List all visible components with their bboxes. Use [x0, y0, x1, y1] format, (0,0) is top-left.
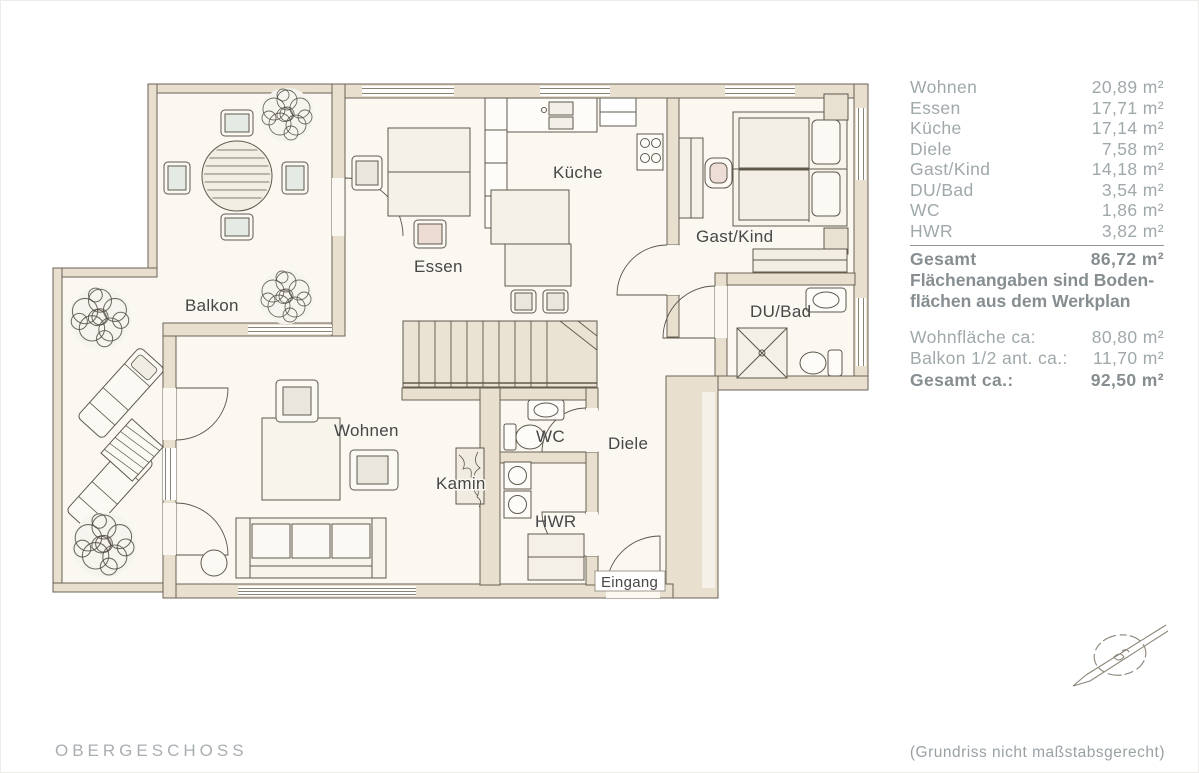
room-label-gast-kind: Gast/Kind — [696, 227, 773, 246]
room-label-hwr: HWR — [535, 512, 577, 531]
room-label-wohnen: Wohnen — [334, 421, 399, 440]
table-row: Wohnen20,89 m² — [910, 77, 1164, 98]
row-label: Küche — [910, 118, 962, 139]
summary-total-row: Gesamt ca.:92,50 m² — [910, 370, 1164, 392]
staircase — [403, 321, 597, 387]
summary-value: 11,70 m² — [1093, 348, 1164, 370]
table-row: Diele7,58 m² — [910, 139, 1164, 160]
scale-disclaimer: (Grundriss nicht maßstabsgerecht) — [910, 744, 1165, 762]
table-row: Essen17,71 m² — [910, 98, 1164, 119]
room-label-wc: WC — [536, 427, 565, 446]
table-row: HWR3,82 m² — [910, 221, 1164, 242]
area-table: Wohnen20,89 m² Essen17,71 m² Küche17,14 … — [910, 77, 1164, 391]
row-value: 7,58 m² — [1102, 139, 1164, 160]
row-label: Essen — [910, 98, 961, 119]
room-label-eingang: Eingang — [601, 574, 658, 591]
summary-label: Balkon 1/2 ant. ca.: — [910, 348, 1068, 370]
table-row: Küche17,14 m² — [910, 118, 1164, 139]
room-label-essen: Essen — [414, 257, 463, 276]
row-value: 17,14 m² — [1092, 118, 1164, 139]
row-value: 17,71 m² — [1092, 98, 1164, 119]
summary-label: Gesamt ca.: — [910, 370, 1014, 392]
summary-label: Wohnfläche ca: — [910, 327, 1036, 349]
total-label: Gesamt — [910, 249, 977, 270]
total-row: Gesamt86,72 m² — [910, 249, 1164, 270]
room-label-balkon: Balkon — [185, 296, 239, 315]
floor-title: OBERGESCHOSS — [55, 741, 248, 761]
summary-row: Wohnfläche ca:80,80 m² — [910, 327, 1164, 349]
room-label-kueche: Küche — [553, 163, 603, 182]
row-label: Diele — [910, 139, 952, 160]
summary-block: Wohnfläche ca:80,80 m² Balkon 1/2 ant. c… — [910, 327, 1164, 392]
area-note-line1: Flächenangaben sind Boden- — [910, 270, 1164, 291]
row-value: 3,82 m² — [1102, 221, 1164, 242]
architect-logo-icon — [1073, 625, 1168, 686]
row-label: Gast/Kind — [910, 159, 990, 180]
total-value: 86,72 m² — [1091, 249, 1164, 270]
room-label-diele: Diele — [608, 434, 648, 453]
row-label: DU/Bad — [910, 180, 974, 201]
row-value: 3,54 m² — [1102, 180, 1164, 201]
row-label: HWR — [910, 221, 953, 242]
row-label: WC — [910, 200, 940, 221]
wall-highlight-stripe — [702, 392, 715, 588]
row-label: Wohnen — [910, 77, 977, 98]
room-label-kamin: Kamin — [436, 474, 486, 493]
table-separator — [910, 245, 1164, 246]
table-row: Gast/Kind14,18 m² — [910, 159, 1164, 180]
row-value: 1,86 m² — [1102, 200, 1164, 221]
table-row: DU/Bad3,54 m² — [910, 180, 1164, 201]
area-note-line2: flächen aus dem Werkplan — [910, 291, 1164, 312]
room-label-du-bad: DU/Bad — [750, 302, 811, 321]
row-value: 14,18 m² — [1092, 159, 1164, 180]
summary-value: 92,50 m² — [1091, 370, 1164, 392]
summary-row: Balkon 1/2 ant. ca.:11,70 m² — [910, 348, 1164, 370]
summary-value: 80,80 m² — [1092, 327, 1164, 349]
row-value: 20,89 m² — [1092, 77, 1164, 98]
table-row: WC1,86 m² — [910, 200, 1164, 221]
